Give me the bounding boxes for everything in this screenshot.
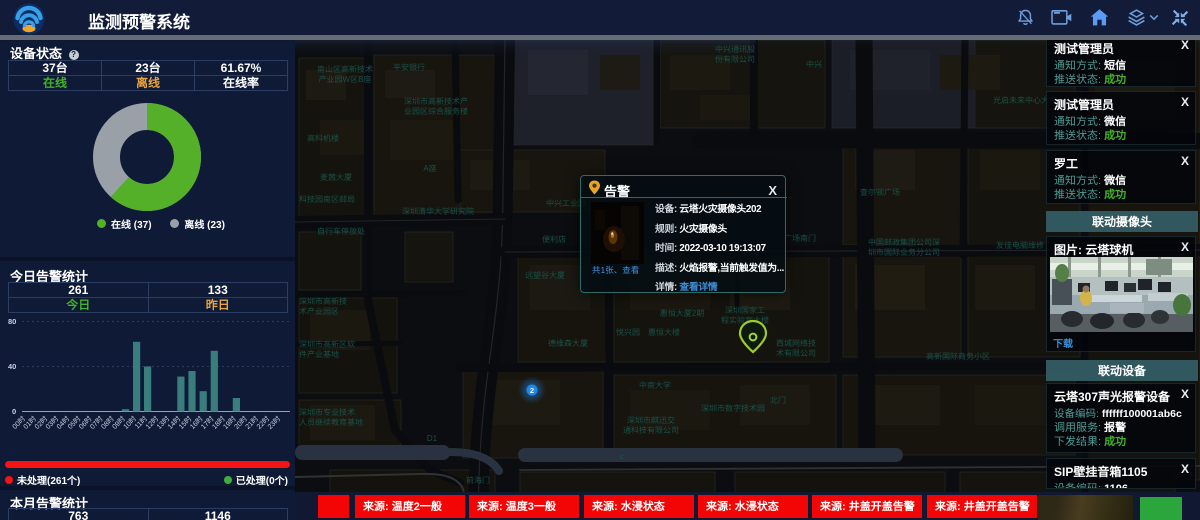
svg-text:惠恒大厦2期: 惠恒大厦2期 xyxy=(660,308,704,319)
svg-text:人员继续教育基地: 人员继续教育基地 xyxy=(299,417,363,428)
svg-text:A座: A座 xyxy=(423,163,436,174)
svg-text:悦兴园: 悦兴园 xyxy=(616,327,640,338)
svg-text:惠恒大楼: 惠恒大楼 xyxy=(648,327,680,338)
svg-text:40: 40 xyxy=(8,361,16,372)
svg-text:中兴: 中兴 xyxy=(806,59,822,70)
svg-text:友佳电脑维修: 友佳电脑维修 xyxy=(996,240,1044,251)
svg-text:业园区综合服务楼: 业园区综合服务楼 xyxy=(404,106,468,117)
svg-text:高科机楼: 高科机楼 xyxy=(307,133,339,144)
svg-text:术产业园区: 术产业园区 xyxy=(299,306,339,317)
svg-text:德维森大厦: 德维森大厦 xyxy=(548,338,588,349)
svg-text:自行车停放处: 自行车停放处 xyxy=(317,226,365,237)
svg-text:平安银行: 平安银行 xyxy=(393,62,425,73)
svg-text:广场南门: 广场南门 xyxy=(784,233,816,244)
svg-text:高新国际商务小区: 高新国际商务小区 xyxy=(926,351,990,362)
svg-text:深圳市数字技术园: 深圳市数字技术园 xyxy=(701,403,765,414)
svg-text:c: c xyxy=(620,451,624,462)
svg-text:23时: 23时 xyxy=(265,414,283,432)
svg-text:深圳清华大学研究院: 深圳清华大学研究院 xyxy=(402,206,474,217)
svg-text:份有限公司: 份有限公司 xyxy=(715,54,755,65)
svg-text:远望谷大厦: 远望谷大厦 xyxy=(525,270,565,281)
svg-text:术有限公司: 术有限公司 xyxy=(776,348,816,359)
svg-text:便利店: 便利店 xyxy=(542,234,566,245)
svg-text:麦茜大厦: 麦茜大厦 xyxy=(320,172,352,183)
svg-text:D1: D1 xyxy=(427,433,438,444)
svg-text:产业园W区B座: 产业园W区B座 xyxy=(319,74,372,85)
svg-text:中南大学: 中南大学 xyxy=(639,380,671,391)
svg-text:前海门: 前海门 xyxy=(466,475,490,486)
svg-text:通科技有限公司: 通科技有限公司 xyxy=(623,425,679,436)
svg-text:80: 80 xyxy=(8,316,16,327)
svg-text:件产业基地: 件产业基地 xyxy=(299,349,339,360)
svg-text:查尔顿广场: 查尔顿广场 xyxy=(860,187,900,198)
svg-text:圳市国际业务分公司: 圳市国际业务分公司 xyxy=(868,247,940,258)
svg-text:0: 0 xyxy=(12,406,16,417)
svg-text:科技园南区邮局: 科技园南区邮局 xyxy=(299,194,355,205)
svg-text:北门: 北门 xyxy=(770,395,786,406)
svg-text:2: 2 xyxy=(530,385,534,396)
